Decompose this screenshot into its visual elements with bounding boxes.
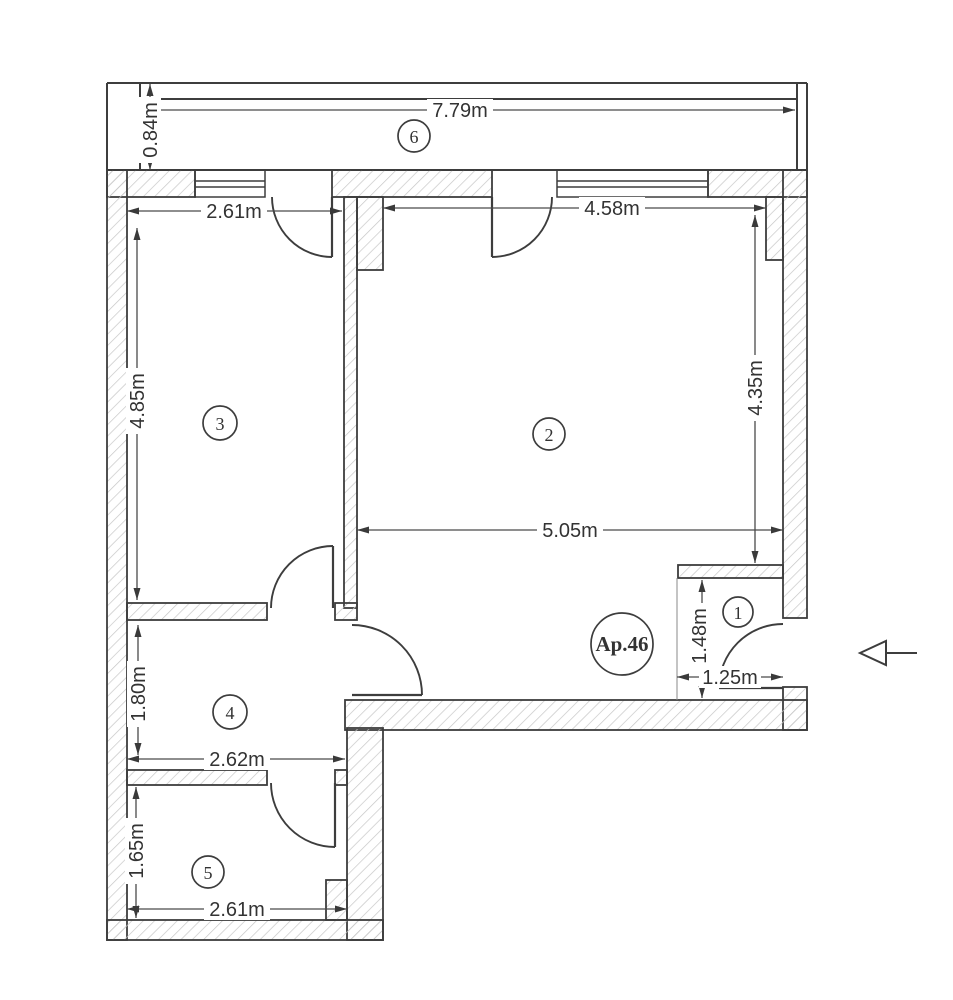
arrow-right-icon	[330, 208, 342, 215]
room-label-6: 6	[398, 120, 430, 152]
dimension-room3-length: 4.85m	[126, 228, 149, 600]
arrow-up-icon	[752, 215, 759, 227]
room-label-2: 2	[533, 418, 565, 450]
apartment-number: Ap.46	[595, 632, 648, 656]
arrow-up-icon	[133, 787, 140, 799]
wall-corridor-bottom	[345, 700, 807, 730]
room-label-4: 4	[213, 695, 247, 729]
wall-left	[107, 170, 127, 940]
wall-pier-room2-left	[357, 197, 383, 270]
dim-entry-length: 1.48m	[689, 608, 711, 664]
dim-entry-width: 1.25m	[702, 667, 758, 689]
wall-room3-bottom	[127, 603, 267, 620]
wall-room4-room5	[127, 770, 267, 785]
arrow-right-icon	[771, 674, 783, 681]
dimension-balcony-width: 7.79m	[142, 99, 795, 122]
window-room3	[195, 170, 265, 197]
dimension-room5-width: 2.61m	[127, 898, 347, 921]
dim-balcony-width: 7.79m	[432, 100, 488, 122]
window-room2	[557, 170, 708, 197]
arrow-right-icon	[783, 107, 795, 114]
room-2-number: 2	[545, 425, 554, 445]
dimension-balcony-depth: 0.84m	[139, 84, 162, 170]
door-arc-room5	[271, 783, 335, 847]
arrow-up-icon	[135, 625, 142, 637]
dim-room2-width: 4.58m	[584, 198, 640, 220]
door-arc-room4	[352, 625, 422, 695]
apartment-label: Ap.46	[591, 613, 653, 675]
dimensions: 7.79m 0.84m 2.61m 4.58m	[125, 84, 795, 921]
room-3-number: 3	[216, 414, 225, 434]
arrow-down-icon	[135, 743, 142, 755]
arrow-up-icon	[134, 228, 141, 240]
arrow-down-icon	[134, 588, 141, 600]
window-room3-frame	[195, 170, 265, 197]
room-1-number: 1	[734, 603, 743, 623]
dimension-room5-length: 1.65m	[125, 787, 148, 918]
door-arc-balcony-room3	[272, 197, 332, 257]
floor-plan: 7.79m 0.84m 2.61m 4.58m	[0, 0, 953, 1000]
dimension-entry-width: 1.25m	[677, 666, 783, 689]
room-labels: 1 2 3 4 5 6	[192, 120, 753, 888]
wall-right-upper	[783, 170, 807, 618]
dimension-room4-width: 2.62m	[127, 748, 345, 771]
arrow-up-icon	[699, 580, 706, 592]
dimension-room2-width: 4.58m	[383, 197, 766, 220]
dimension-room2-length: 4.35m	[744, 215, 767, 563]
dim-room2-bottom-width: 5.05m	[542, 520, 598, 542]
wall-room3-bottom-stub	[335, 603, 357, 620]
arrow-right-icon	[333, 756, 345, 763]
room-5-number: 5	[204, 863, 213, 883]
door-arc-room3	[271, 546, 333, 608]
window-room2-frame	[557, 170, 708, 197]
room-label-3: 3	[203, 406, 237, 440]
arrow-right-icon	[771, 527, 783, 534]
wall-top-center-segment	[332, 170, 492, 197]
arrow-right-icon	[754, 205, 766, 212]
dim-room5-length: 1.65m	[126, 823, 148, 879]
room-label-1: 1	[723, 597, 753, 627]
floor-plan-svg: 7.79m 0.84m 2.61m 4.58m	[0, 0, 953, 1000]
arrow-up-icon	[147, 84, 154, 96]
dim-room4-width: 2.62m	[209, 749, 265, 771]
balcony	[107, 83, 807, 170]
wall-bottom	[107, 920, 383, 940]
entrance-arrow-head-icon	[860, 641, 886, 665]
dim-room5-width: 2.61m	[209, 899, 265, 921]
wall-room5-step	[326, 880, 347, 920]
wall-room4-room5-stub	[335, 770, 347, 785]
arrow-left-icon	[383, 205, 395, 212]
dimension-room2-bottom-width: 5.05m	[357, 519, 783, 542]
dim-room3-width: 2.61m	[206, 201, 262, 223]
room-6-number: 6	[410, 127, 419, 147]
wall-pier-room2-right	[766, 197, 783, 260]
arrow-left-icon	[357, 527, 369, 534]
dimension-room4-length: 1.80m	[127, 625, 150, 755]
dim-room4-length: 1.80m	[128, 666, 150, 722]
arrow-down-icon	[752, 551, 759, 563]
wall-divider-room3-room2	[344, 197, 357, 608]
dimension-room3-width: 2.61m	[127, 200, 342, 223]
arrow-left-icon	[677, 674, 689, 681]
arrow-left-icon	[127, 208, 139, 215]
entrance-arrow	[860, 641, 917, 665]
dim-room2-length: 4.35m	[745, 360, 767, 416]
wall-lower-wing-right	[347, 728, 383, 940]
dim-room3-length: 4.85m	[127, 373, 149, 429]
dim-balcony-depth: 0.84m	[140, 102, 162, 158]
door-arc-balcony-room2	[492, 197, 552, 257]
wall-entry-partition	[678, 565, 783, 578]
arrow-left-icon	[127, 756, 139, 763]
room-4-number: 4	[226, 703, 235, 723]
walls	[107, 170, 807, 940]
room-label-5: 5	[192, 856, 224, 888]
